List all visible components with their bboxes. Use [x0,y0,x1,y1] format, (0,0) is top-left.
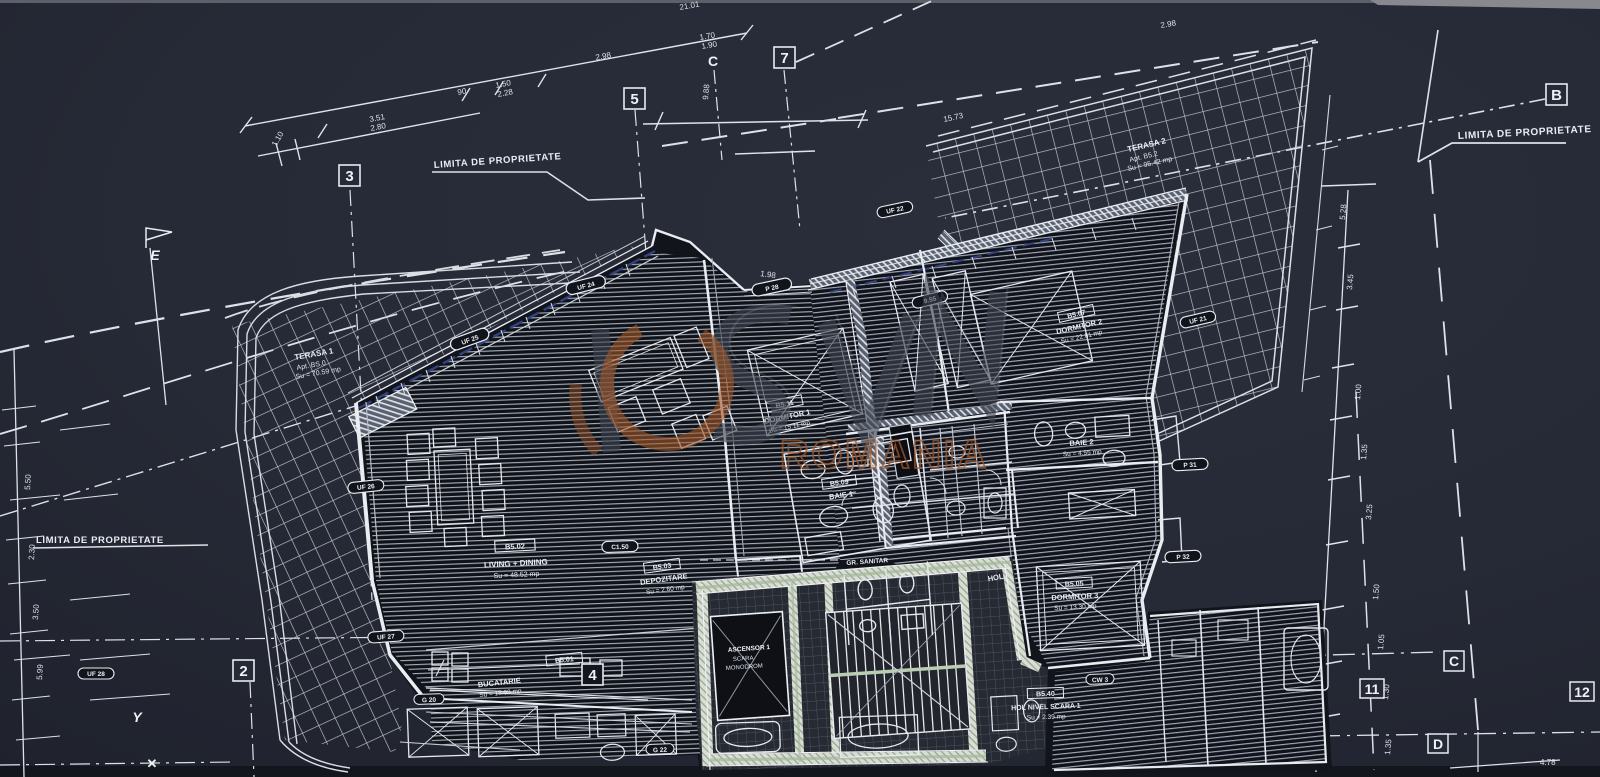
svg-text:C: C [708,53,718,69]
svg-text:B5.05: B5.05 [1065,581,1084,589]
svg-text:3.25: 3.25 [1364,503,1374,520]
svg-text:✕: ✕ [147,756,158,771]
svg-text:P 32: P 32 [1176,554,1190,562]
svg-text:D: D [1433,736,1443,752]
svg-text:7: 7 [780,50,788,67]
svg-text:C1.50: C1.50 [611,544,629,552]
svg-text:9.88: 9.88 [701,83,711,100]
svg-text:3: 3 [345,168,353,185]
svg-text:1.00: 1.00 [1353,383,1363,400]
svg-text:12: 12 [1574,684,1590,700]
svg-text:G 22: G 22 [653,747,668,755]
svg-text:4: 4 [588,667,597,684]
svg-text:1.35: 1.35 [1359,443,1369,460]
svg-text:1.05: 1.05 [1376,633,1386,650]
svg-text:G 20: G 20 [422,697,437,705]
svg-text:1.30: 1.30 [1381,683,1391,700]
svg-text:B5.40: B5.40 [1036,691,1055,699]
svg-text:3.45: 3.45 [1345,273,1355,290]
svg-text:11: 11 [1365,681,1380,697]
svg-text:LIMITA DE PROPRIETATE: LIMITA DE PROPRIETATE [36,535,164,546]
svg-text:UF 27: UF 27 [377,633,396,641]
svg-text:B: B [1551,87,1562,104]
svg-text:1.35: 1.35 [1383,738,1393,755]
svg-text:5: 5 [630,91,638,108]
svg-text:2.30: 2.30 [27,544,37,561]
svg-text:B5.02: B5.02 [505,542,525,552]
svg-text:P 31: P 31 [1183,462,1197,470]
svg-text:4.78: 4.78 [1540,758,1556,767]
svg-text:1.50: 1.50 [1371,583,1381,600]
svg-text:E: E [150,247,160,263]
svg-text:2: 2 [239,663,247,680]
svg-text:5.50: 5.50 [23,474,33,491]
svg-text:5.28: 5.28 [1338,203,1348,220]
svg-text:3.50: 3.50 [31,604,41,621]
svg-text:ROMANIA: ROMANIA [780,433,989,477]
svg-text:C: C [1449,653,1459,669]
svg-text:CW 3: CW 3 [1092,677,1109,685]
svg-text:5.99: 5.99 [35,664,45,681]
svg-text:UF 28: UF 28 [87,671,105,678]
svg-text:BAIE 2: BAIE 2 [1069,437,1094,448]
svg-text:Su = 2.39 mp: Su = 2.39 mp [1027,713,1066,721]
